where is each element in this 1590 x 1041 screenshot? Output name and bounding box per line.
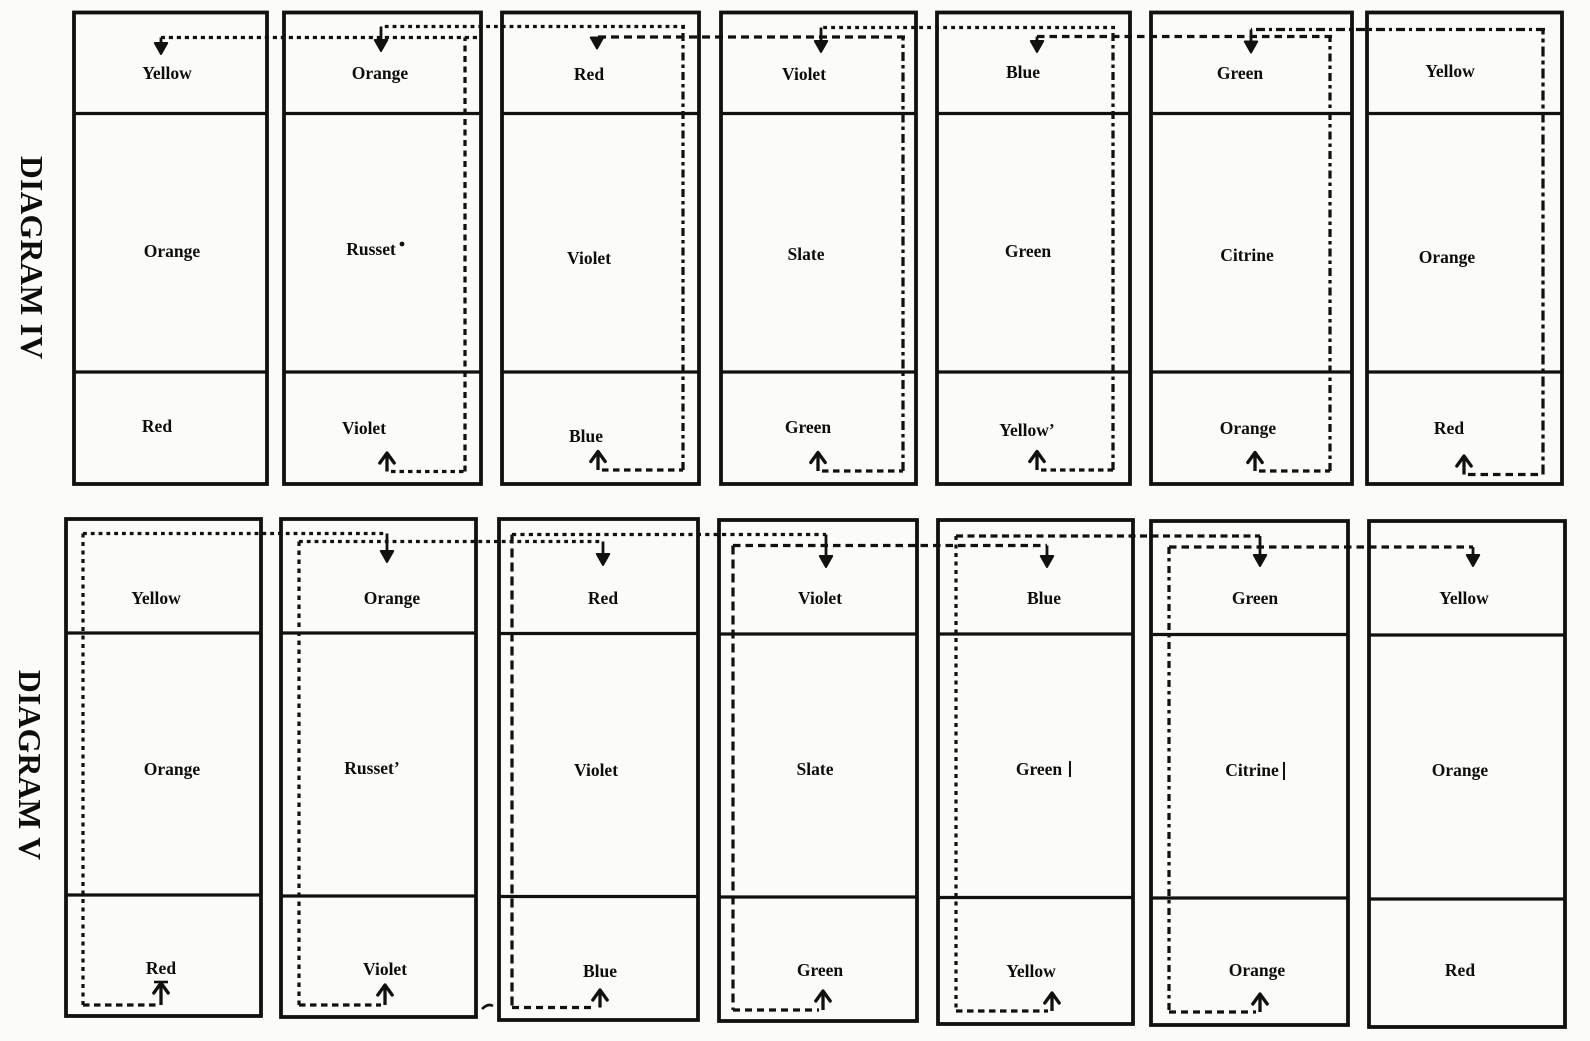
svg-text:Blue: Blue [1006,62,1040,82]
svg-text:Green: Green [797,960,844,980]
svg-text:Orange: Orange [144,759,201,779]
svg-text:Violet: Violet [567,248,611,268]
svg-text:Green: Green [1016,759,1063,779]
svg-text:Violet: Violet [574,760,618,780]
svg-text:Green: Green [1217,63,1264,83]
svg-text:Red: Red [1434,418,1464,438]
svg-text:Blue: Blue [583,961,617,981]
svg-text:Russet: Russet [346,239,396,259]
svg-text:Citrine: Citrine [1225,760,1279,780]
svg-text:Red: Red [146,958,176,978]
svg-text:Orange: Orange [1419,247,1476,267]
svg-text:Orange: Orange [1432,760,1489,780]
svg-text:Citrine: Citrine [1220,245,1274,265]
svg-text:Yellow: Yellow [142,63,192,83]
svg-text:Blue: Blue [1027,588,1061,608]
svg-text:Violet: Violet [342,418,386,438]
svg-text:Russet’: Russet’ [344,758,399,778]
svg-text:Orange: Orange [1220,418,1277,438]
svg-text:Blue: Blue [569,426,603,446]
svg-text:DIAGRAM V: DIAGRAM V [12,670,47,860]
svg-text:Slate: Slate [797,759,834,779]
svg-text:Red: Red [588,588,618,608]
svg-text:Yellow: Yellow [1439,588,1489,608]
svg-text:Green: Green [1232,588,1279,608]
svg-text:Orange: Orange [352,63,409,83]
svg-text:Violet: Violet [782,64,826,84]
svg-text:Orange: Orange [1229,960,1286,980]
svg-text:Orange: Orange [144,241,201,261]
svg-text:Yellow: Yellow [1425,61,1475,81]
svg-text:Green: Green [785,417,832,437]
svg-text:Red: Red [142,416,172,436]
svg-text:Slate: Slate [788,244,825,264]
svg-text:Yellow’: Yellow’ [999,420,1054,440]
svg-text:Green: Green [1005,241,1052,261]
svg-text:Yellow: Yellow [131,588,181,608]
svg-text:DIAGRAM IV: DIAGRAM IV [14,156,49,359]
svg-text:Red: Red [574,64,604,84]
svg-text:Violet: Violet [798,588,842,608]
svg-text:Violet: Violet [363,959,407,979]
svg-text:Red: Red [1445,960,1475,980]
svg-text:Orange: Orange [364,588,421,608]
svg-text:Yellow: Yellow [1006,961,1056,981]
